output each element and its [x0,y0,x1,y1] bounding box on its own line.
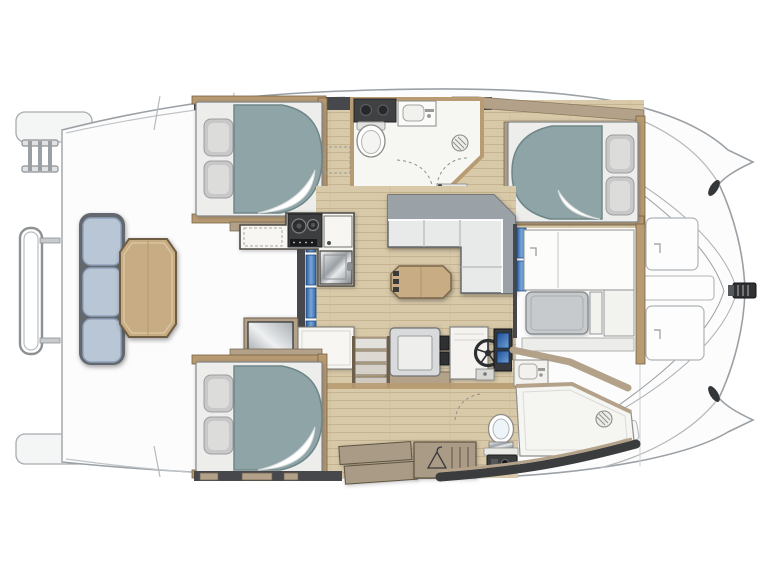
mattress [234,105,322,213]
pillow [204,417,233,454]
storage-panel [524,230,634,290]
storage-panel [590,292,602,334]
sink-icon [320,251,352,284]
deck-hatch [646,218,698,270]
swim-ladder-icon [22,140,58,172]
port-forward-cabin [504,116,645,228]
double-berth [508,122,638,222]
stern-rail [20,228,60,354]
lounge-bench [526,292,588,334]
floorplan-canvas [0,0,768,576]
pillow [606,135,634,173]
cockpit-bench [79,213,125,365]
toilet-icon [357,122,385,157]
mattress [234,366,322,470]
salon-table [391,266,451,298]
pillow [204,161,233,198]
starboard-aft-cabin [192,349,342,481]
cockpit-table [120,239,176,337]
port-aft-cabin [192,96,327,231]
stove-burners-icon [288,214,322,247]
deck-locker [642,276,714,300]
catamaran-floorplan [0,0,768,576]
pillow [204,375,233,412]
washbasin-icon [514,360,548,386]
storage-panel [604,290,634,336]
port-head [352,99,482,191]
double-berth [196,362,322,472]
shower-drain-icon [596,411,612,427]
shower-drain-icon [452,135,468,151]
pillow [204,119,233,156]
deck-hatch [646,306,704,360]
mattress [512,126,602,219]
anchor-roller-icon [728,283,756,298]
washbasin-icon [398,101,436,126]
pillow [606,177,634,215]
double-berth [196,102,322,216]
